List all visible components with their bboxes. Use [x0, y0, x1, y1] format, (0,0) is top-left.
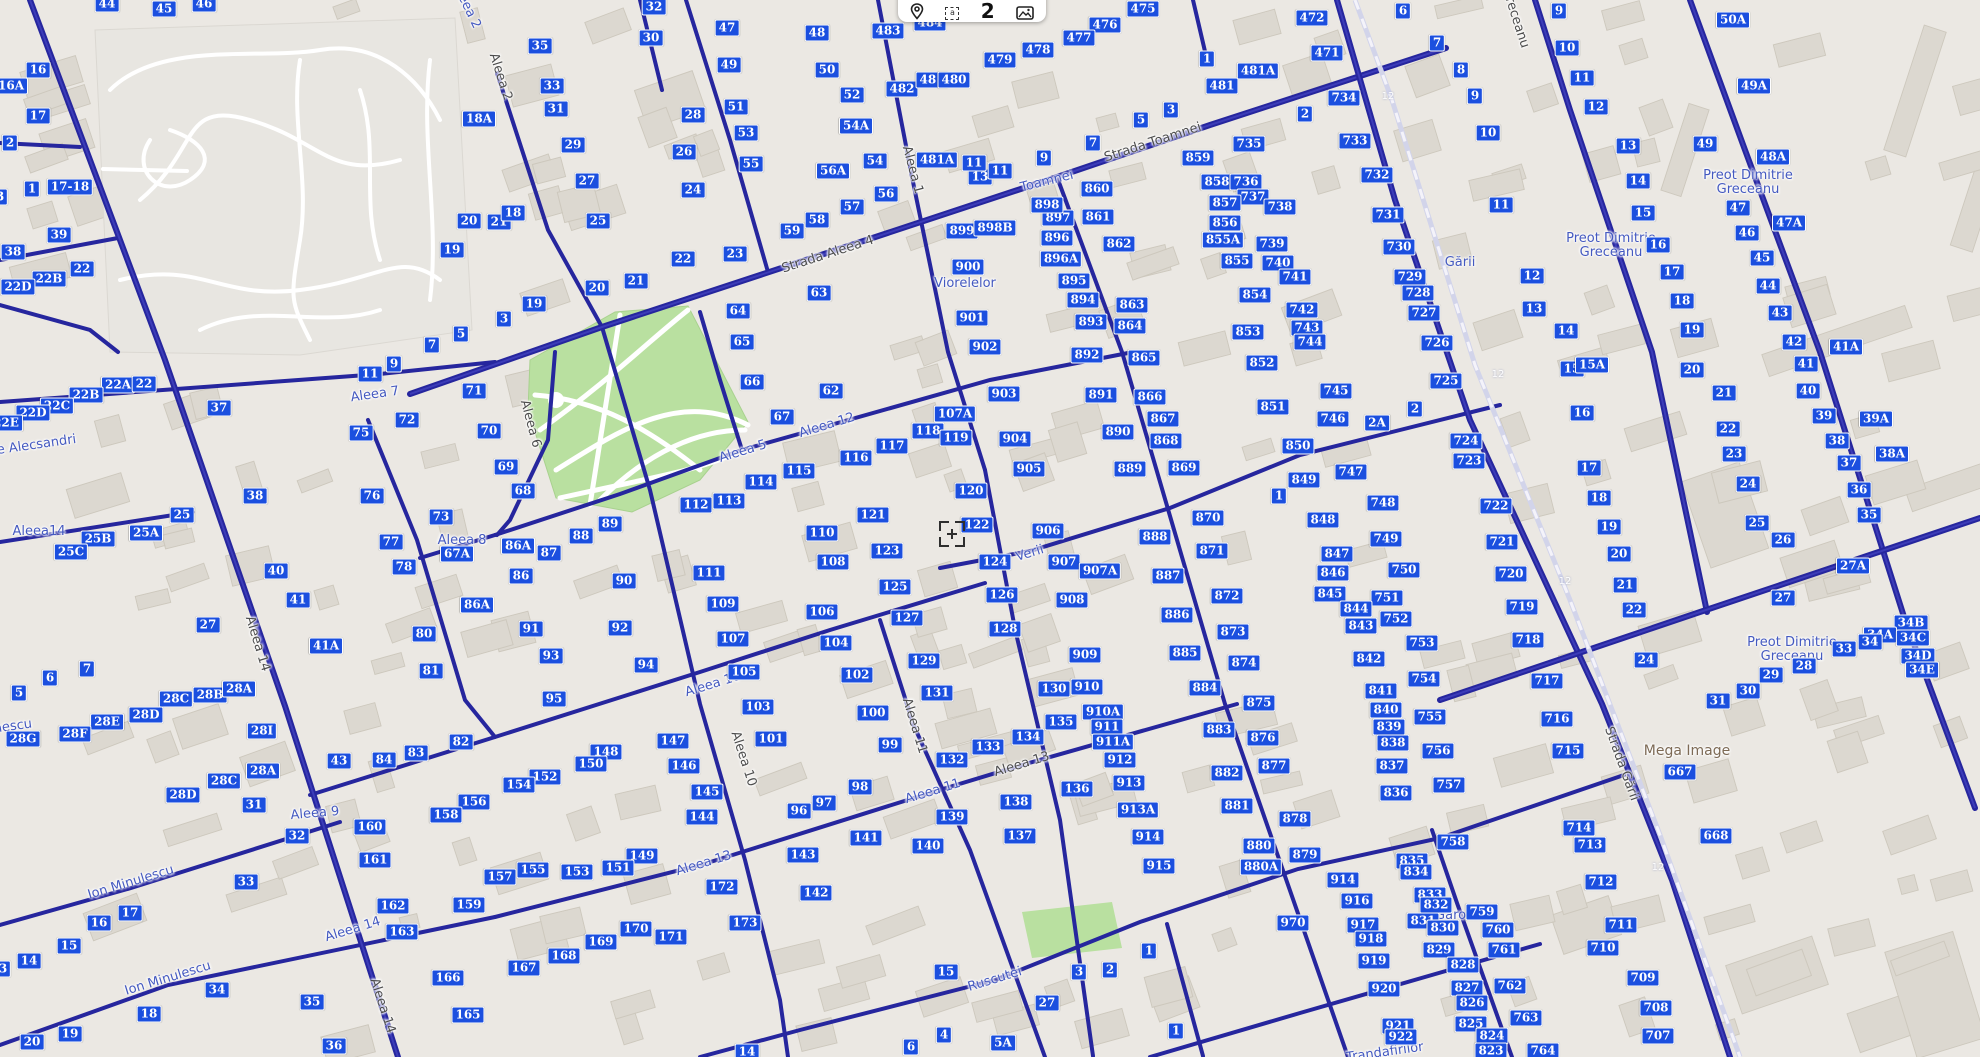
road-major [1337, 0, 1730, 1057]
house-number-badge: 872 [1210, 588, 1243, 605]
road-major [1690, 0, 1975, 808]
house-number-badge: 717 [1530, 673, 1563, 690]
house-number-badge: 855A [1202, 232, 1244, 249]
house-number-badge: 12 [1520, 268, 1545, 285]
house-number-badge: 41 [286, 592, 311, 609]
house-number-badge: 830 [1426, 920, 1459, 937]
house-number-badge: 41A [309, 638, 343, 655]
house-number-badge: 54 [863, 153, 888, 170]
house-number-badge: 24 [1634, 652, 1659, 669]
house-number-badge: 862 [1102, 236, 1135, 253]
house-number-badge: 21 [1613, 577, 1638, 594]
house-number-badge: 876 [1246, 730, 1279, 747]
house-number-badge: 668 [1699, 828, 1732, 845]
house-number-badge: 114 [744, 474, 777, 491]
house-number-badge: 853 [1231, 324, 1264, 341]
house-number-badge: 910 [1070, 679, 1103, 696]
house-number-badge: 18 [501, 205, 526, 222]
house-number-badge: 52 [840, 87, 865, 104]
house-number-badge: 763 [1509, 1010, 1542, 1027]
house-number-badge: 40 [264, 563, 289, 580]
house-number-badge: 755 [1413, 709, 1446, 726]
house-number-badge: 34 [1858, 634, 1883, 651]
house-number-badge: 481A [916, 152, 958, 169]
house-number-badge: 4 [936, 1027, 952, 1044]
house-number-badge: 6 [903, 1039, 919, 1056]
house-number-badge: 90 [612, 573, 637, 590]
house-number-badge: 868 [1149, 433, 1182, 450]
house-number-badge: 50 [815, 62, 840, 79]
house-number-badge: 15 [57, 938, 82, 955]
house-number-badge: 12 [1584, 99, 1609, 116]
house-number-badge: 886 [1160, 607, 1193, 624]
house-number-badge: 110 [805, 525, 838, 542]
house-number-badge: 881 [1220, 798, 1253, 815]
house-number-badge: 126 [985, 587, 1018, 604]
house-number-badge: 22 [1716, 421, 1741, 438]
house-number-badge: 718 [1511, 632, 1544, 649]
house-number-badge: 29 [561, 137, 586, 154]
house-number-badge: 864 [1113, 318, 1146, 335]
house-number-badge: 29 [1759, 667, 1784, 684]
house-number-badge: 140 [911, 838, 944, 855]
house-number-badge: 169 [584, 934, 617, 951]
street-name-label: Gării [1445, 256, 1476, 270]
house-number-badge: 43 [1768, 305, 1793, 322]
house-number-badge: 887 [1151, 568, 1184, 585]
house-number-badge: 891 [1084, 387, 1117, 404]
house-number-badge: 38 [1, 244, 26, 261]
house-number-badge: 713 [1573, 837, 1606, 854]
house-number-badge: 20 [1680, 362, 1705, 379]
house-number-badge: 894 [1066, 292, 1099, 309]
house-number-badge: 744 [1293, 334, 1326, 351]
house-number-badge: 708 [1639, 1000, 1672, 1017]
house-number-badge: 10 [1476, 125, 1501, 142]
house-number-badge: 11 [1570, 70, 1595, 87]
house-number-badge: 918 [1354, 931, 1387, 948]
house-number-badge: 913A [1117, 802, 1159, 819]
house-number-badge: 39 [47, 227, 72, 244]
house-number-badge: 750 [1387, 562, 1420, 579]
house-number-badge: 53 [734, 125, 759, 142]
house-number-badge: 171 [654, 929, 687, 946]
house-number-badge: 472 [1295, 10, 1328, 27]
house-number-badge: 22E [0, 415, 23, 432]
house-number-badge: 28F [58, 726, 91, 743]
house-number-badge: 33 [540, 78, 565, 95]
house-number-badge: 65 [730, 334, 755, 351]
house-number-badge: 25 [586, 213, 611, 230]
house-number-badge: 14 [735, 1044, 760, 1057]
railway-ref-label: 12 [1559, 575, 1572, 589]
house-number-badge: 22 [132, 376, 157, 393]
house-number-badge: 920 [1367, 981, 1400, 998]
house-number-badge: 47 [1726, 200, 1751, 217]
house-number-badge: 760 [1481, 922, 1514, 939]
house-number-badge: 896 [1040, 230, 1073, 247]
house-number-badge: 27 [575, 173, 600, 190]
house-number-badge: 28A [222, 681, 256, 698]
house-number-badge: 715 [1551, 743, 1584, 760]
house-number-badge: 20 [457, 213, 482, 230]
house-number-badge: 19 [1680, 322, 1705, 339]
house-number-badge: 1 [1271, 488, 1287, 505]
house-number-badge: 25A [129, 525, 163, 542]
house-number-badge: 81 [419, 663, 444, 680]
house-number-badge: 919 [1357, 953, 1390, 970]
house-number-badge: 836 [1379, 785, 1412, 802]
house-number-badge: 970 [1276, 915, 1309, 932]
house-number-badge: 129 [907, 653, 940, 670]
house-number-badge: 732 [1360, 167, 1393, 184]
house-number-badge: 75 [349, 425, 374, 442]
house-number-badge: 14 [1626, 173, 1651, 190]
map-toolbar: a 2 [898, 0, 1046, 22]
house-number-badge: 9 [1036, 150, 1052, 167]
house-number-badge: 839 [1372, 719, 1405, 736]
house-number-badge: 9 [386, 356, 402, 373]
house-number-badge: 92 [608, 620, 633, 637]
house-number-badge: 147 [656, 733, 689, 750]
house-number-badge: 46 [192, 0, 217, 13]
house-number-badge: 18 [1670, 293, 1695, 310]
house-number-badge: 481 [1205, 78, 1238, 95]
house-number-badge: 170 [619, 921, 652, 938]
map-canvas[interactable]: Aleea 2Aleea 2Aleea 1Aleea 6GreceanuAlee… [0, 0, 1980, 1057]
house-number-badge: 716 [1540, 711, 1573, 728]
street-name-label: Aleea14 [12, 525, 65, 539]
house-number-badge: 3 [0, 961, 11, 978]
house-number-badge: 11 [1489, 197, 1514, 214]
house-number-badge: 720 [1494, 566, 1527, 583]
house-number-badge: 828 [1446, 957, 1479, 974]
house-number-badge: 710 [1586, 940, 1619, 957]
house-number-badge: 155 [516, 862, 549, 879]
house-number-badge: 747 [1334, 464, 1367, 481]
house-number-badge: 56 [874, 186, 899, 203]
house-number-badge: 896A [1040, 251, 1082, 268]
house-number-badge: 30 [639, 30, 664, 47]
house-number-badge: 34 [205, 982, 230, 999]
house-number-badge: 1 [1199, 51, 1215, 68]
house-number-badge: 47 [715, 20, 740, 37]
house-number-badge: 108 [816, 554, 849, 571]
house-number-badge: 58 [805, 212, 830, 229]
house-number-badge: 877 [1257, 758, 1290, 775]
house-number-badge: 16 [26, 62, 51, 79]
house-number-badge: 134 [1011, 729, 1044, 746]
house-number-badge: 914 [1326, 872, 1359, 889]
house-number-badge: 19 [440, 242, 465, 259]
house-number-badge: 481A [1237, 63, 1279, 80]
house-number-badge: 70 [477, 423, 502, 440]
house-number-badge: 117 [875, 438, 908, 455]
house-number-badge: 2 [1407, 401, 1423, 418]
zoom-level-indicator[interactable]: 2 [981, 2, 995, 20]
house-number-badge: 856 [1208, 215, 1241, 232]
house-number-badge: 19 [522, 296, 547, 313]
house-number-badge: 19 [58, 1026, 83, 1043]
house-number-badge: 893 [1074, 314, 1107, 331]
house-number-badge: 721 [1485, 534, 1518, 551]
house-number-badge: 87 [537, 545, 562, 562]
house-number-badge: 37 [1837, 455, 1862, 472]
house-number-badge: 912 [1103, 752, 1136, 769]
house-number-badge: 130 [1037, 681, 1070, 698]
house-number-badge: 39 [1812, 408, 1837, 425]
house-number-badge: 32 [642, 0, 667, 16]
house-number-badge: 13 [1616, 138, 1641, 155]
house-number-badge: 17-18 [47, 179, 93, 196]
house-number-badge: 905 [1012, 461, 1045, 478]
house-number-badge: 28I [247, 723, 277, 740]
house-number-badge: 136 [1060, 781, 1093, 798]
house-number-badge: 48A [1756, 149, 1790, 166]
house-number-badge: 840 [1369, 702, 1402, 719]
house-number-badge: 77 [379, 534, 404, 551]
house-number-badge: 475 [1126, 1, 1159, 18]
house-number-badge: 842 [1352, 651, 1385, 668]
street-name-label: Preot Dimitrie Greceanu [1566, 232, 1656, 260]
house-number-badge: 478 [1021, 42, 1054, 59]
house-number-badge: 8 [1453, 62, 1469, 79]
house-number-badge: 18 [137, 1006, 162, 1023]
house-number-badge: 133 [971, 739, 1004, 756]
house-number-badge: 69 [494, 459, 519, 476]
house-number-badge: 23 [723, 246, 748, 263]
house-number-badge: 28E [90, 714, 124, 731]
house-number-badge: 751 [1370, 590, 1403, 607]
house-number-badge: 109 [706, 596, 739, 613]
house-number-badge: 41A [1829, 339, 1863, 356]
house-number-badge: 7 [1085, 135, 1101, 152]
house-number-badge: 107 [716, 631, 749, 648]
house-number-badge: 163 [385, 924, 418, 941]
house-number-badge: 11 [358, 366, 383, 383]
house-number-badge: 878 [1278, 811, 1311, 828]
house-number-badge: 31 [544, 101, 569, 118]
house-number-badge: 54A [839, 118, 873, 135]
house-number-badge: 154 [502, 777, 535, 794]
house-number-badge: 106 [805, 604, 838, 621]
house-number-badge: 44 [1756, 278, 1781, 295]
house-number-badge: 104 [819, 635, 852, 652]
house-number-badge: 128 [988, 621, 1021, 638]
house-number-badge: 922 [1384, 1029, 1417, 1046]
house-number-badge: 23 [1722, 446, 1747, 463]
house-number-badge: 869 [1167, 460, 1200, 477]
house-number-badge: 25 [1745, 515, 1770, 532]
house-number-badge: 94 [634, 657, 659, 674]
house-number-badge: 723 [1452, 453, 1485, 470]
house-number-badge: 40 [1796, 383, 1821, 400]
house-number-badge: 911A [1092, 734, 1134, 751]
house-number-badge: 49 [717, 57, 742, 74]
house-number-badge: 107A [934, 406, 976, 423]
house-number-badge: 13 [1522, 301, 1547, 318]
house-number-badge: 884 [1188, 680, 1221, 697]
house-number-badge: 141 [849, 830, 882, 847]
house-number-badge: 143 [786, 847, 819, 864]
house-number-badge: 116 [839, 450, 872, 467]
house-number-badge: 14 [17, 953, 42, 970]
house-number-badge: 915 [1142, 858, 1175, 875]
road-minor [368, 420, 495, 737]
house-number-badge: 99 [878, 737, 903, 754]
house-number-badge: 728 [1401, 285, 1434, 302]
house-number-badge: 883 [1202, 722, 1235, 739]
house-number-badge: 727 [1407, 305, 1440, 322]
house-number-badge: 21 [624, 273, 649, 290]
railway-ref-label: 12 [1492, 368, 1505, 382]
house-number-badge: 86A [460, 597, 494, 614]
house-number-badge: 67 [770, 409, 795, 426]
house-number-badge: 28D [165, 787, 200, 804]
house-number-badge: 28C [159, 691, 193, 708]
house-number-badge: 849 [1287, 472, 1320, 489]
house-number-badge: 102 [840, 667, 873, 684]
house-number-badge: 873 [1216, 624, 1249, 641]
house-number-badge: 142 [799, 885, 832, 902]
house-number-badge: 735 [1232, 136, 1265, 153]
house-number-badge: 6 [42, 670, 58, 687]
house-number-badge: 158 [429, 807, 462, 824]
location-pin-icon[interactable] [910, 2, 924, 20]
house-number-badge: 131 [920, 685, 953, 702]
house-number-badge: 71 [462, 383, 487, 400]
house-number-badge: 67A [440, 546, 474, 563]
house-number-badge: 35 [1857, 507, 1882, 524]
house-number-badge: 25 [170, 507, 195, 524]
house-number-badge: 1 [1141, 943, 1157, 960]
house-number-badge: 719 [1505, 599, 1538, 616]
house-number-badge: 17 [1577, 460, 1602, 477]
house-number-badge: 28A [246, 763, 280, 780]
house-number-badge: 27A [1836, 558, 1870, 575]
house-number-badge: 9 [1551, 3, 1567, 20]
road-minor [310, 583, 985, 795]
house-number-badge: 916 [1340, 893, 1373, 910]
house-number-badge: 35 [528, 38, 553, 55]
house-number-badge: 31 [1706, 693, 1731, 710]
house-number-badge: 749 [1369, 531, 1402, 548]
house-number-badge: 66 [740, 374, 765, 391]
house-number-badge: 892 [1070, 347, 1103, 364]
house-number-badge: 73 [429, 509, 454, 526]
house-number-badge: 120 [954, 483, 987, 500]
house-number-badge: 11 [962, 155, 987, 172]
house-number-badge: 72 [395, 412, 420, 429]
house-number-badge: 17 [1660, 264, 1685, 281]
house-number-badge: 901 [955, 310, 988, 327]
house-number-badge: 76 [360, 488, 385, 505]
house-number-badge: 847 [1320, 546, 1353, 563]
house-number-badge: 22 [70, 261, 95, 278]
house-number-badge: 742 [1285, 302, 1318, 319]
image-icon[interactable] [1016, 2, 1034, 20]
house-number-badge: 138 [999, 794, 1032, 811]
house-number-badge: 875 [1242, 695, 1275, 712]
select-text-icon[interactable]: a [945, 2, 959, 20]
house-number-badge: 5 [11, 685, 27, 702]
house-number-badge: 733 [1338, 133, 1371, 150]
house-number-badge: 31 [242, 797, 267, 814]
house-number-badge: 28 [1792, 658, 1817, 675]
road-minor [1440, 775, 1624, 838]
house-number-badge: 103 [741, 699, 774, 716]
house-number-badge: 173 [728, 915, 761, 932]
house-number-badge: 726 [1420, 335, 1453, 352]
house-number-badge: 860 [1080, 181, 1113, 198]
house-number-badge: 753 [1405, 635, 1438, 652]
house-number-badge: 904 [998, 431, 1031, 448]
house-number-badge: 880A [1240, 859, 1282, 876]
house-number-badge: 34C [1896, 630, 1930, 647]
house-number-badge: 51 [724, 99, 749, 116]
house-number-badge: 124 [978, 554, 1011, 571]
house-number-badge: 121 [856, 507, 889, 524]
house-number-badge: 843 [1344, 618, 1377, 635]
house-number-badge: 859 [1181, 150, 1214, 167]
house-number-badge: 113 [712, 493, 745, 510]
house-number-badge: 895 [1057, 273, 1090, 290]
house-number-badge: 823 [1474, 1043, 1507, 1057]
house-number-badge: 43 [327, 753, 352, 770]
house-number-badge: 57 [840, 199, 865, 216]
house-number-badge: 754 [1407, 671, 1440, 688]
house-number-badge: 866 [1133, 389, 1166, 406]
house-number-badge: 759 [1465, 904, 1498, 921]
house-number-badge: 871 [1195, 543, 1228, 560]
house-number-badge: 757 [1432, 777, 1465, 794]
house-number-badge: 752 [1379, 611, 1412, 628]
house-number-badge: 913 [1112, 775, 1145, 792]
house-number-badge: 39A [1859, 411, 1893, 428]
house-number-badge: 850 [1281, 438, 1314, 455]
house-number-badge: 748 [1366, 495, 1399, 512]
house-number-badge: 100 [856, 705, 889, 722]
house-number-badge: 80 [412, 626, 437, 643]
house-number-badge: 15 [934, 964, 959, 981]
house-number-badge: 7 [1429, 35, 1445, 52]
house-number-badge: 907A [1079, 563, 1121, 580]
house-number-badge: 1 [24, 181, 40, 198]
house-number-badge: 731 [1371, 207, 1404, 224]
house-number-badge: 758 [1436, 834, 1469, 851]
house-number-badge: 17 [118, 905, 143, 922]
house-number-badge: 844 [1339, 601, 1372, 618]
house-number-badge: 46 [1735, 225, 1760, 242]
house-number-badge: 35 [300, 994, 325, 1011]
house-number-badge: 168 [547, 948, 580, 965]
house-number-badge: 98 [848, 779, 873, 796]
house-number-badge: 9 [1467, 88, 1483, 105]
house-number-badge: 38 [243, 488, 268, 505]
house-number-badge: 125 [878, 579, 911, 596]
house-number-badge: 722 [1479, 498, 1512, 515]
house-number-badge: 477 [1062, 30, 1095, 47]
house-number-badge: 41 [1794, 356, 1819, 373]
house-number-badge: 3 [1071, 964, 1087, 981]
house-number-badge: 908 [1055, 592, 1088, 609]
house-number-badge: 45 [152, 1, 177, 18]
house-number-badge: 16 [87, 915, 112, 932]
house-number-badge: 2A [1364, 415, 1390, 432]
house-number-badge: 28C [207, 773, 241, 790]
house-number-badge: 725 [1429, 373, 1462, 390]
house-number-badge: 3 [496, 311, 512, 328]
